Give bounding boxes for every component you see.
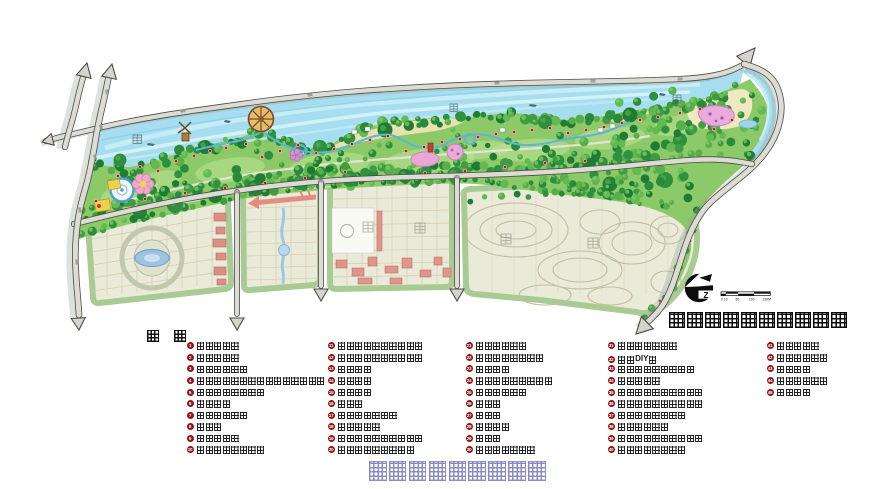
svg-text:150M: 150M — [763, 298, 772, 302]
svg-text:0 10: 0 10 — [721, 298, 728, 302]
svg-text:100: 100 — [749, 298, 755, 302]
svg-text:50: 50 — [736, 298, 740, 302]
svg-text:Z: Z — [703, 290, 708, 300]
